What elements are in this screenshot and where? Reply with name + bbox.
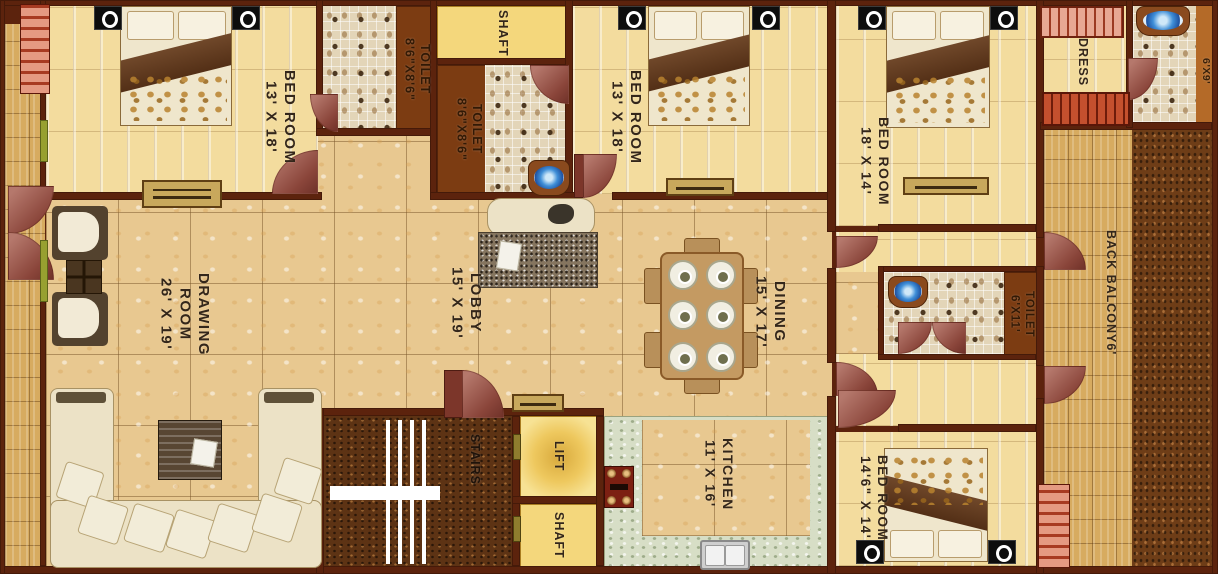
label-dress: DRESS (1066, 34, 1090, 90)
wall (40, 282, 46, 566)
wall (1212, 0, 1218, 574)
label-shaft-bottom: SHAFT (544, 508, 566, 562)
bed-foot-bench (903, 177, 989, 195)
floral-sheet (125, 72, 226, 122)
lobby-sofa (487, 198, 595, 236)
wall (878, 354, 1036, 360)
magazine (496, 240, 522, 271)
washbasin (888, 276, 928, 308)
entry-steps (20, 4, 50, 94)
pillow (701, 11, 744, 40)
wall (878, 266, 884, 360)
washbasin (528, 160, 570, 196)
wall (316, 408, 446, 416)
label-bedroom-4: BED ROOM14'6" X 14' (842, 438, 890, 558)
lobby-sofa-item (548, 204, 574, 224)
stair-landing (330, 486, 440, 500)
magazine (190, 438, 218, 467)
wall (878, 266, 1036, 272)
label-bedroom-2: BED ROOM13' X 18' (596, 38, 644, 196)
pillow (890, 530, 934, 558)
plate (706, 300, 736, 330)
lift-hinge (513, 434, 521, 460)
label-dining: DINING15' X 17' (740, 252, 788, 372)
door-sill (40, 240, 48, 302)
bed (120, 6, 232, 126)
label-kitchen: KITCHEN11' X 16' (688, 424, 736, 524)
wall (878, 224, 1036, 232)
wall (827, 0, 836, 232)
pillow (938, 530, 982, 558)
lobby-rug (478, 232, 598, 288)
kitchen-sink (700, 540, 750, 570)
back-balcony-steps (1038, 484, 1070, 568)
wall (512, 496, 604, 504)
plate (706, 342, 736, 372)
floral-sheet (653, 72, 745, 122)
bed (886, 6, 990, 128)
label-bedroom-3: BED ROOM18' X 14' (844, 98, 892, 224)
sofa-headrest (264, 392, 314, 403)
wall (1036, 266, 1044, 366)
stove (604, 466, 634, 508)
label-toilet-1: TOILET8'6"X8'6" (392, 10, 432, 128)
pillow (940, 11, 984, 41)
side-table (66, 260, 102, 294)
label-toilet-4: TOILET6'X11' (1000, 276, 1036, 352)
tv-unit (142, 180, 222, 208)
bed (884, 448, 988, 562)
washbasin (1136, 6, 1190, 36)
nightstand-lamp (618, 6, 646, 30)
outside-ground (1132, 130, 1212, 568)
wall (437, 58, 570, 65)
wardrobe-dress-bottom (1042, 92, 1130, 126)
nightstand-lamp (94, 6, 122, 30)
wall (0, 0, 5, 574)
plate (706, 260, 736, 290)
armchair (52, 206, 108, 260)
wall (827, 268, 836, 363)
label-shaft-top: SHAFT (488, 8, 510, 58)
label-toilet-2: TOILET8'6"X8'6" (438, 68, 484, 190)
floor-plan: BED ROOM13' X 18' TOILET8'6"X8'6" SHAFT … (0, 0, 1218, 574)
label-lobby: LOBBY15' X 19' (436, 248, 484, 358)
pillow (127, 11, 174, 40)
label-lift: LIFT (544, 432, 566, 480)
wall (827, 396, 836, 574)
nightstand-lamp (232, 6, 260, 30)
shaft-hinge (513, 516, 521, 542)
nightstand-lamp (752, 6, 780, 30)
floral-sheet (891, 73, 985, 123)
nightstand-lamp (858, 6, 886, 30)
door-sill (40, 120, 48, 162)
lobby-console (512, 394, 564, 412)
plate (668, 260, 698, 290)
pillow (654, 11, 697, 40)
wall (898, 424, 1036, 432)
wall (596, 416, 604, 566)
front-balcony (5, 24, 45, 570)
sofa-headrest (56, 392, 106, 403)
bed-foot-bench (666, 178, 734, 196)
armchair (52, 292, 108, 346)
bed (648, 6, 750, 126)
nightstand-lamp (988, 540, 1016, 564)
label-stairs: STAIRS (458, 424, 482, 494)
label-drawing-room: DRAWINGROOM26' X 19' (138, 228, 212, 400)
passage-alcove (836, 272, 878, 354)
label-toilet-3-partial: 6'X9' (1199, 42, 1212, 100)
label-bedroom-1: BED ROOM13' X 18' (250, 38, 298, 196)
plate (668, 342, 698, 372)
floral-sheet (889, 453, 983, 505)
door-leaf-main-entry (444, 370, 464, 418)
nightstand-lamp (990, 6, 1018, 30)
pillow (892, 11, 936, 41)
label-back-balcony: BACK BALCONY6' (1096, 218, 1118, 368)
plate (668, 300, 698, 330)
